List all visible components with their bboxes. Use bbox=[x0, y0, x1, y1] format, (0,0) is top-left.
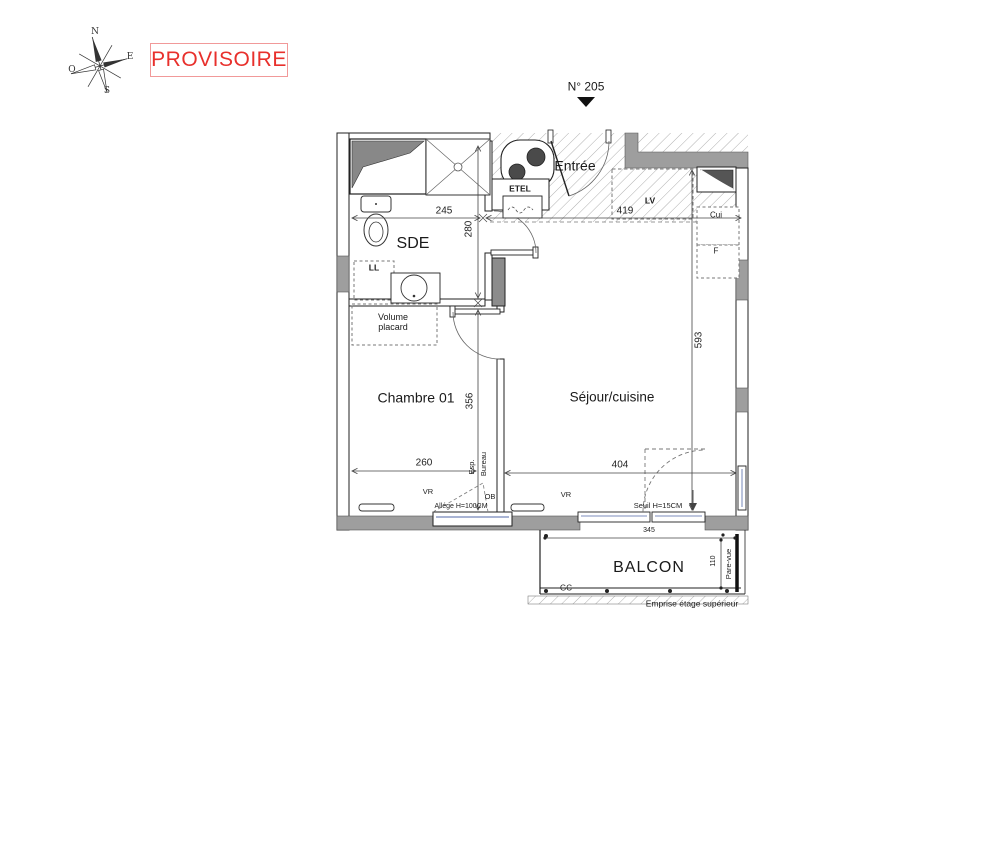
unit-pointer bbox=[577, 97, 595, 107]
floorplan-page: PROVISOIRE N E O S N° 205 SDE Entrée Cha… bbox=[0, 0, 1000, 857]
dim-593: 593 bbox=[694, 332, 705, 349]
dim-356: 356 bbox=[465, 393, 476, 410]
toilet bbox=[361, 196, 391, 246]
privacy-screen-label: Pare-vue bbox=[725, 549, 733, 579]
floorplan-drawing bbox=[0, 0, 1000, 857]
room-label-chambre: Chambre 01 bbox=[377, 390, 454, 405]
shutter-label-sejour: VR bbox=[561, 491, 571, 499]
room-label-sejour: Séjour/cuisine bbox=[570, 391, 655, 406]
closet-label: Volume placard bbox=[367, 313, 419, 333]
threshold-label: Seuil H=15CM bbox=[634, 502, 683, 510]
room-label-sde: SDE bbox=[397, 235, 430, 253]
kitchen-sink bbox=[697, 167, 736, 192]
upper-floor-footprint-label: Emprise étage supérieur bbox=[646, 599, 739, 608]
washer-label: LL bbox=[369, 263, 379, 272]
compass-west-label: O bbox=[68, 66, 75, 76]
provisoire-stamp: PROVISOIRE bbox=[150, 43, 288, 77]
shutter-label-chambre: VR bbox=[423, 488, 433, 496]
room-label-entree: Entrée bbox=[554, 158, 595, 173]
dim-404: 404 bbox=[612, 460, 629, 471]
shower-tray bbox=[426, 139, 490, 195]
room-label-balcon: BALCON bbox=[613, 559, 685, 577]
unit-number: N° 205 bbox=[568, 80, 605, 93]
ob-label: OB bbox=[485, 493, 496, 501]
guardrail-label: GC bbox=[560, 585, 572, 594]
dim-419: 419 bbox=[617, 206, 634, 217]
dim-245: 245 bbox=[436, 206, 453, 217]
compass-south-label: S bbox=[104, 87, 110, 97]
vanity-unit bbox=[350, 139, 426, 194]
compass-east-label: E bbox=[127, 53, 134, 63]
compass-north-label: N bbox=[91, 28, 99, 38]
washbasin bbox=[391, 273, 440, 303]
dim-110: 110 bbox=[710, 555, 718, 566]
dishwasher-label: LV bbox=[645, 196, 655, 205]
etel-label: ETEL bbox=[509, 184, 531, 193]
fridge-label: F bbox=[714, 248, 719, 257]
desk-space-label-2: Bureau bbox=[480, 452, 488, 476]
sill-height-label: Allége H=100CM bbox=[434, 503, 487, 511]
dim-280: 280 bbox=[464, 221, 475, 238]
dim-260: 260 bbox=[416, 458, 433, 469]
dim-345: 345 bbox=[643, 527, 655, 535]
bedroom-door bbox=[450, 306, 500, 359]
desk-space-label-1: Esp. bbox=[468, 459, 476, 474]
cooktop-label: Cui bbox=[710, 212, 722, 221]
